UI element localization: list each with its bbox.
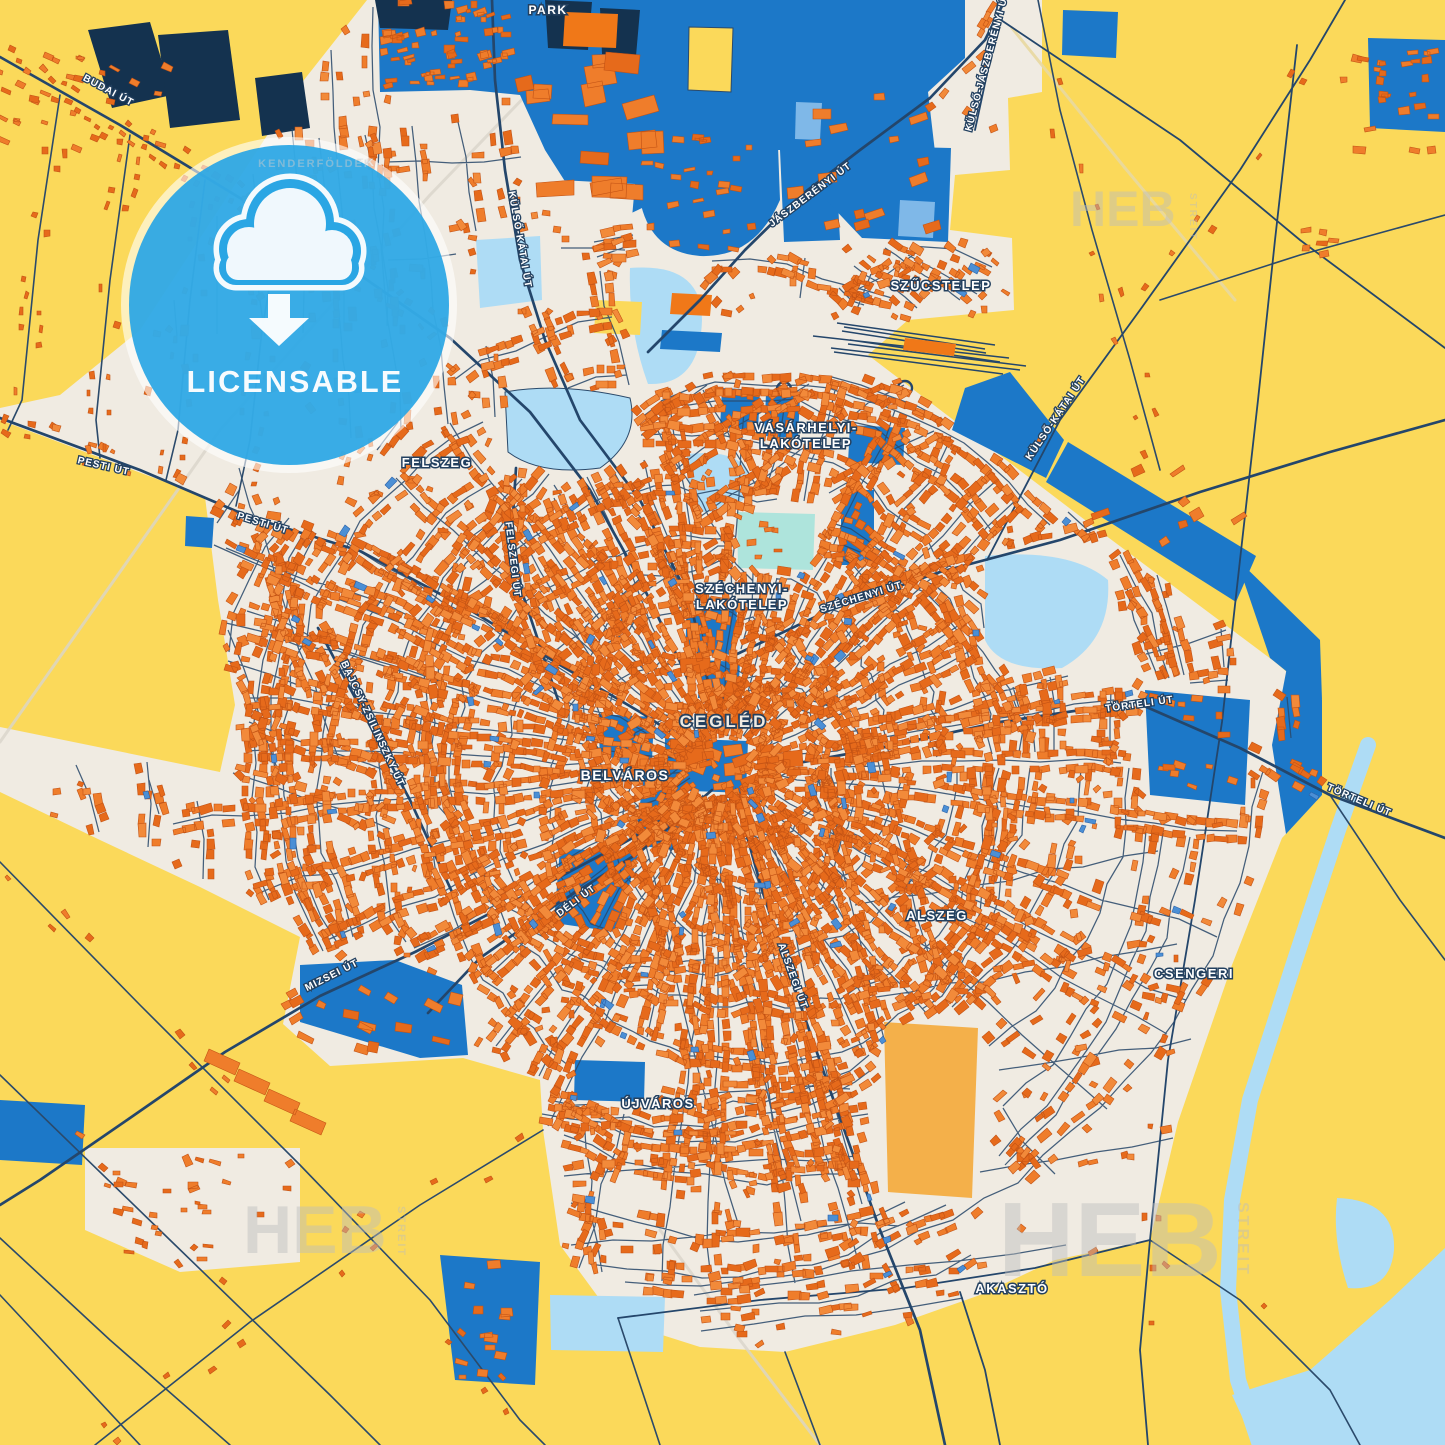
svg-text:SZŰCSTELEP: SZŰCSTELEP — [891, 278, 992, 293]
svg-text:ALSZEG: ALSZEG — [906, 908, 968, 923]
svg-text:HEB: HEB — [1070, 181, 1176, 237]
svg-text:LAKÓTELEP: LAKÓTELEP — [760, 436, 852, 451]
svg-text:HEB: HEB — [998, 1181, 1222, 1299]
svg-text:KENDERFÖLDEK: KENDERFÖLDEK — [258, 157, 374, 170]
svg-text:CEGLÉD: CEGLÉD — [680, 712, 769, 731]
svg-text:STREIT: STREIT — [1187, 193, 1198, 241]
svg-text:VÁSÁRHELYI-: VÁSÁRHELYI- — [754, 420, 857, 435]
svg-text:SZÉCHENYI-: SZÉCHENYI- — [695, 581, 789, 596]
svg-text:LAKÓTELEP: LAKÓTELEP — [696, 597, 788, 612]
svg-text:HEB: HEB — [243, 1192, 387, 1268]
svg-text:PARK: PARK — [528, 3, 567, 17]
svg-text:STREIT: STREIT — [395, 1206, 407, 1257]
svg-text:STREIT: STREIT — [1234, 1202, 1251, 1277]
svg-text:CSENGERI: CSENGERI — [1154, 966, 1234, 981]
svg-text:FELSZEG: FELSZEG — [402, 455, 472, 470]
svg-text:LICENSABLE: LICENSABLE — [187, 365, 404, 399]
svg-text:BELVÁROS: BELVÁROS — [581, 767, 670, 783]
svg-text:ÚJVÁROS: ÚJVÁROS — [621, 1096, 694, 1111]
